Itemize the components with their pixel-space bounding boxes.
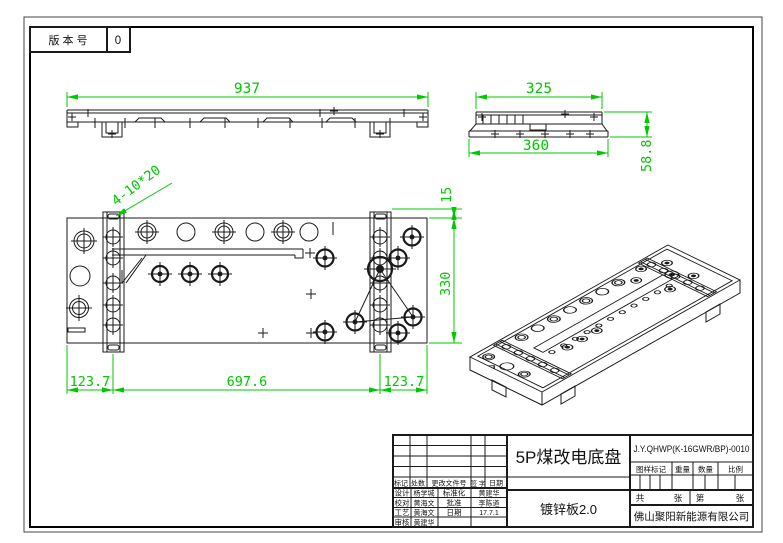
plan-middle-holes — [148, 262, 232, 286]
title-block-middle: 5P煤改电底盘 镀锌板2.0 — [507, 448, 630, 517]
cad-drawing-sheet: 版 本 号 0 937 — [0, 0, 783, 543]
front-elevation-view: 937 — [67, 81, 428, 138]
staff-review-name: 黄建华 — [414, 518, 435, 527]
front-tick-marks — [95, 118, 390, 128]
right-mounting-rail — [364, 212, 396, 352]
staff-table: 设计 杨学城 标准化 黄建华 校对 黄海文 批准 李陈道 工艺 黄海文 日期 1… — [393, 488, 507, 528]
plan-right-holes — [313, 225, 425, 345]
title-block-right: J.Y.QHWP(K-16GWR/BP)-0010 图样标记 重量 数量 比例 … — [630, 444, 753, 523]
staff-date-value: 17.7.1 — [479, 510, 499, 517]
staff-date-label: 日期 — [447, 508, 462, 517]
staff-approve-label: 批准 — [447, 497, 462, 507]
plan-left-holes — [66, 228, 97, 332]
front-cross-marks — [68, 107, 427, 121]
title-block: 标记 处数 更改文件号 签 字 日期 设计 杨学城 标准化 黄建华 校对 黄海文… — [393, 435, 753, 527]
dim-plan-height: 330 — [438, 272, 454, 296]
stamp-header-quantity: 数量 — [698, 464, 713, 474]
rev-header-mark: 标记 — [394, 479, 408, 488]
rev-header-date: 日期 — [489, 480, 503, 488]
stamp-header-scale: 比例 — [728, 464, 743, 474]
sheets-page-unit: 张 — [736, 493, 745, 503]
plan-cross-marks — [258, 248, 316, 338]
slot-callout: 4-10*20 — [109, 162, 172, 216]
rev-header-signature: 签 字 — [471, 479, 486, 488]
staff-process-label: 工艺 — [395, 508, 410, 517]
left-mounting-rail — [103, 212, 124, 352]
sheets-page-label: 第 — [696, 493, 705, 503]
staff-review-label: 审核 — [395, 517, 410, 527]
part-title: 5P煤改电底盘 — [516, 448, 622, 467]
sheet-count-row: 共 张 第 张 — [636, 490, 745, 505]
stamp-header-row: 图样标记 重量 数量 比例 — [636, 462, 743, 490]
material-spec: 镀锌板2.0 — [540, 502, 597, 517]
plan-long-strip — [112, 249, 303, 283]
staff-approve-name: 李陈道 — [479, 498, 500, 507]
dim-side-top-width: 325 — [526, 81, 552, 97]
drawing-code: J.Y.QHWP(K-16GWR/BP)-0010 — [634, 444, 750, 454]
version-box-label: 版 本 号 — [48, 33, 87, 47]
dim-slot-callout: 4-10*20 — [109, 162, 164, 209]
revision-table: 标记 处数 更改文件号 签 字 日期 — [393, 435, 507, 488]
plan-view: 123.7 697.6 123.7 15 330 4-10*20 — [66, 162, 462, 394]
dim-side-bottom-width: 360 — [523, 138, 549, 154]
plan-top-hole-row — [135, 220, 333, 244]
rev-header-count: 处数 — [411, 479, 425, 488]
rev-header-changedoc: 更改文件号 — [432, 479, 467, 488]
version-box: 版 本 号 0 — [30, 27, 130, 52]
side-elevation-view: 325 360 — [469, 81, 655, 172]
stamp-header-weight: 重量 — [675, 465, 690, 474]
dim-plan-span: 697.6 — [227, 374, 268, 390]
dim-side-height: 58.8 — [639, 139, 655, 172]
company-name: 佛山聚阳新能源有限公司 — [634, 510, 750, 523]
staff-standardize-label: 标准化 — [443, 488, 466, 498]
staff-process-name: 黄海文 — [414, 508, 435, 517]
sheets-total-unit: 张 — [674, 493, 683, 503]
dim-plan-right-offset: 123.7 — [384, 374, 425, 390]
dim-front-width: 937 — [234, 81, 260, 97]
dim-plan-top-offset: 15 — [439, 187, 455, 203]
stamp-header-mark: 图样标记 — [636, 464, 666, 474]
sheets-total-label: 共 — [636, 493, 645, 503]
dim-plan-left-offset: 123.7 — [70, 374, 111, 390]
staff-standardize-name: 黄建华 — [479, 489, 500, 498]
side-hatch — [483, 115, 523, 124]
staff-design-name: 杨学城 — [414, 489, 435, 498]
staff-check-name: 黄海文 — [414, 498, 435, 507]
staff-design-label: 设计 — [395, 488, 410, 498]
isometric-view — [470, 245, 740, 405]
version-box-value: 0 — [115, 35, 121, 47]
staff-check-label: 校对 — [395, 497, 410, 507]
